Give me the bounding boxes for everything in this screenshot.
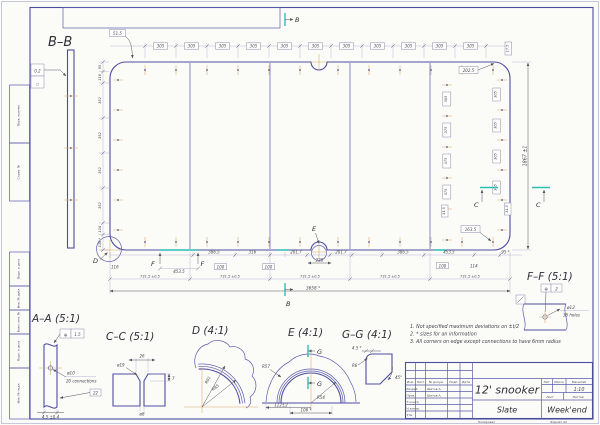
pitch-dim: 305 [436,44,444,49]
margin-label: Подп. и дата [17,341,21,362]
interior-boxed-dims: 305 375 375 375 305 305 305 305 31.5 31.… [442,64,512,242]
e-radius-outer: R57 [262,364,270,369]
inner-pitch-dim: 305 [444,95,448,102]
aa-position-tol: 1.5 [74,332,81,337]
gg-radius-dim: R6 [352,363,358,368]
tb-header-lit: Лит. [544,380,551,384]
e-opening-dim: 106 * [301,408,312,413]
pocket-width-dim: 228 [316,258,324,263]
tb-row-approved: Утв. [407,413,413,417]
section-length-dim: 731.5 ±0.5 [380,274,400,278]
tb-header-doc: № докум. [429,380,444,384]
tb-header-date: Дата [462,380,470,384]
plan-section-labels: B B C C D E [93,13,550,308]
detail-e-label: E [312,225,317,233]
tb-header-sign: Подп. [449,380,458,384]
tb-row-developed: Разраб. [407,387,419,391]
gg-edge-dim: 4.5 * [352,346,362,351]
corner-offset-dim: 17.5 [505,44,509,53]
pitch-dim: 305 [374,44,382,49]
e-width-dim: 112±2 [274,402,288,407]
section-length-dim: 731.5 ±0.5 [460,274,480,278]
dim-114: 114 [470,264,478,269]
detail-d-label: D [93,257,98,265]
bottom-chain-dim: 201.7 [335,250,347,255]
pitch-dim: 305 [219,44,227,49]
margin-boxes: Перв. примен. Справ. № Подп. и дата Инв.… [10,85,30,419]
bottom-chain-dim: 201.7 [290,250,302,255]
bottom-chain-dim: 453.5 [443,250,455,255]
edge-offset-dim: 31.5 [505,204,509,213]
margin-label: Подп. и дата [17,259,21,280]
margin-label: Инв. № дубл. [17,288,21,309]
left-chain-dim: 116 [98,73,102,80]
dim-116: 116 [111,265,119,270]
view-gg: G–G (4:1) 4.5 * R6 45° [342,329,402,384]
cc-section-left [113,374,140,406]
right-overall-dim: 1867 ±1 [512,62,531,250]
tb-developed-by: Шитов А. [427,387,442,391]
left-chain-dim: 352 [98,201,102,208]
first-offset-dim: 51.5 [113,31,122,36]
view-ff-title: F–F (5:1) [527,271,573,283]
tb-company: Week'end [547,406,588,415]
slate-joints [190,63,430,249]
margin-label: Взам. инв. № [17,312,21,332]
bb-slate-edge [68,50,75,248]
bb-flatness-frame: 0.2 ▱ [31,64,44,88]
pitch-dim: 305 [312,44,320,49]
section-length-dim: 731.5 ±0.5 [220,274,240,278]
inner-pitch-dim: 375 [444,157,448,164]
margin-label: Справ. № [17,165,21,180]
bottom-chain-dim: 386.5 [397,250,409,255]
aa-hole-note: 20 connections [66,379,96,384]
tb-row-checked: Пров. [407,393,416,397]
gg-section-shape [366,354,392,384]
left-dim-chain: 95 116 352 352 352 352 116 116 * [98,60,109,252]
tb-scale-value: 1:10 [574,387,585,393]
position-icon: ⊕ [64,332,68,337]
sheet-format-label: Формат А2 [550,420,567,424]
bb-flatness-value: 0.2 [34,69,41,74]
margin-label: Перв. примен. [17,104,21,127]
pitch-dim: 305 [157,44,165,49]
cc-csk-dia: ø19 [116,363,125,368]
aa-boxed-dim: 22 [93,390,99,395]
view-gg-title: G–G (4:1) [342,329,392,341]
ref-dim-2: 163.5 [465,227,477,232]
section-f-label: F [201,260,205,268]
top-dim-chain: 305 305 305 305 305 305 305 305 305 305 … [110,30,512,59]
note-1: 1. Not specified maximum deviations on ±… [410,324,519,330]
gg-angle-dim: 45° [395,375,402,380]
title-block: Изм. Лист № докум. Подп. Дата Разраб. Ши… [406,363,593,425]
pitch-dim: 305 [250,44,258,49]
hundred-dim: 100 [439,263,447,268]
ff-holes-count: 36 holes [563,313,580,318]
bottom-chain-dim: 316 [249,250,257,255]
overall-length-dim: 3658 * [306,285,320,290]
tb-header-sheets: Листов [572,395,583,399]
left-chain-dim: 352 [98,131,102,138]
position-icon: ⊕ [544,287,548,292]
view-d-title: D (4:1) [192,325,229,337]
pitch-dim: 305 [188,44,196,49]
section-b-label: B [286,300,291,308]
edge-pitch-dim: 305 [494,90,498,97]
aa-hole-dia: ø10 [66,371,75,376]
hundred-dim: 100 [265,264,273,269]
d-radius-inner: R85 [211,383,221,392]
left-chain-dim: 352 [98,166,102,173]
section-c-label: C [536,201,541,209]
section-length-dim: 731.5 ±0.5 [300,274,320,278]
tb-header-list: Лист [417,380,425,384]
sheet-copied-label: Копировал [478,420,495,424]
tb-row-tcontrol: Т.контр. [406,400,420,404]
section-b-label: B [295,16,300,24]
bottom-chain-dim: 95 * [501,250,509,255]
tb-drawing-title: 12' snooker [475,384,541,397]
section-f-label: F [151,260,155,268]
view-bb: B–B 0.2 ▱ [31,35,78,248]
d-radius-outer: R91 [204,375,212,384]
section-c-label: C [474,201,479,209]
tb-row-ncontrol: Н.контр. [407,407,420,411]
plan-view: 305 305 305 305 305 305 305 305 305 305 … [93,13,550,308]
view-bb-title: B–B [48,35,72,50]
pitch-dim: 305 [405,44,413,49]
view-aa-title: A–A (5:1) [31,313,80,325]
note-3: 3. All corners on edge except connection… [410,339,561,345]
section-g-label: G [317,348,322,356]
ff-position-tol: 2 [555,286,558,291]
f-span-dim: 453.5 [173,269,185,274]
view-cc: C–C (5:1) 26 ø19 7 ø8 [106,331,175,417]
cc-top-width-dim: 26 [139,354,145,359]
left-chain-dim: 116 [98,225,102,232]
edge-pitch-dim: 305 [494,152,498,159]
tb-header-sheet: Лист [546,395,554,399]
left-chain-dim: 116 * [98,237,102,247]
top-left-designation-cell [63,8,280,29]
inner-pitch-dim: 375 [444,188,448,195]
edge-pitch-dim: 305 [494,121,498,128]
drawing-sheet: Перв. примен. Справ. № Подп. и дата Инв.… [0,0,600,425]
view-ff: F–F (5:1) ⊕ 2 ø12 36 holes [516,271,589,330]
ff-hole-dia: ø12 [566,305,575,310]
tb-checked-by: Шитов А. [427,393,442,397]
tb-header-izm: Изм. [407,380,414,384]
cc-hole-dia: ø8 [139,412,145,417]
cc-depth-dim: 7 [172,376,175,381]
view-aa: A–A (5:1) ⊕ 1.5 ø10 20 connections 22 4.… [31,313,101,420]
inner-pitch-dim: 375 [444,126,448,133]
margin-label: Инв. № подл. [17,383,21,404]
tb-header-scale: Масштаб [572,380,586,384]
overall-width-dim: 1867 ±1 [523,146,529,167]
cc-section-right [144,374,165,406]
notes-block: 1. Not specified maximum deviations on ±… [410,324,561,345]
ref-dim-1: 202.5 [463,68,475,73]
drawing-svg: Перв. примен. Справ. № Подп. и дата Инв.… [0,0,600,425]
e-radius-inner: R54 [317,395,325,400]
edge-offset-dim: 31.5 [442,206,446,215]
tb-material: Slate [497,406,517,415]
view-d: D (4:1) R85 R91 [184,325,258,413]
aa-slate-bar [44,344,57,408]
bottom-chain-dim: 386.5 [208,250,220,255]
left-chain-dim: 352 [98,96,102,103]
pitch-dim: 305 [467,44,475,49]
d-blob-outline [195,340,256,408]
section-g-label: G [317,380,322,388]
bottom-dim-chains: 386.5 316 201.7 201.7 386.5 453.5 95 * 2… [108,250,522,294]
view-cc-title: C–C (5:1) [106,331,154,343]
note-2: 2. * sizes for an information [410,332,477,338]
view-e-title: E (4:1) [288,327,323,339]
tb-header-mass: Масса [554,380,564,384]
pitch-dim: 305 [343,44,351,49]
aa-thickness-dim: 4.5 ±0.4 [42,415,60,420]
section-length-dim: 731.5 ±0.5 [140,274,160,278]
hundred-dim: 100 [217,264,225,269]
pitch-dim: 305 [281,44,289,49]
left-chain-dim: 95 [98,64,102,69]
